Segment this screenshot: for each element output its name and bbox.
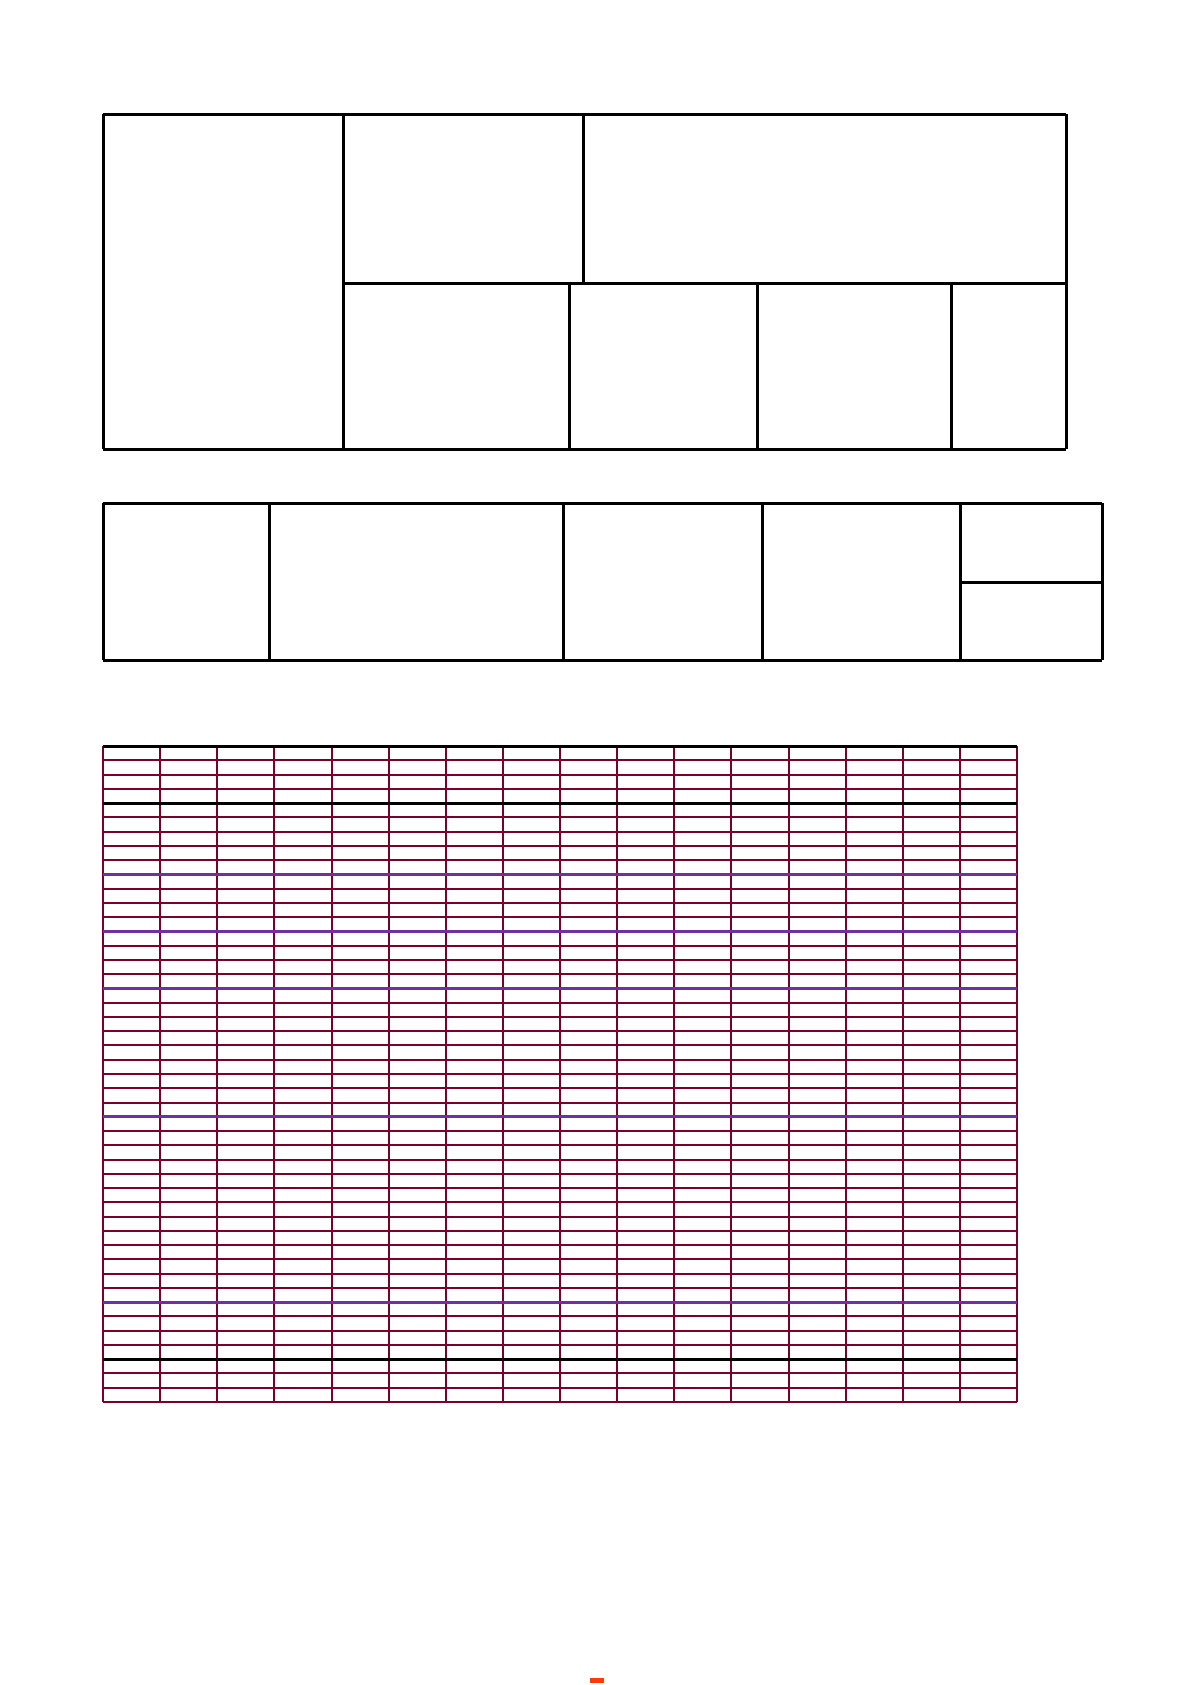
footer-red-mark [590, 1678, 604, 1683]
grid-top-border [103, 745, 1017, 748]
grid-horizontal-line [103, 945, 1017, 947]
grid-horizontal-line [103, 1287, 1017, 1289]
ruled-writing-grid [0, 0, 1191, 1685]
grid-horizontal-line [103, 959, 1017, 961]
grid-horizontal-line [103, 1115, 1017, 1118]
grid-horizontal-line [103, 774, 1017, 776]
grid-horizontal-line [103, 902, 1017, 904]
grid-horizontal-line [103, 1173, 1017, 1175]
grid-bottom-border [103, 1401, 1017, 1403]
grid-horizontal-line [103, 1016, 1017, 1018]
grid-horizontal-line [103, 1315, 1017, 1317]
grid-horizontal-line [103, 1244, 1017, 1246]
grid-horizontal-line [103, 1087, 1017, 1089]
grid-horizontal-line [103, 873, 1017, 876]
grid-horizontal-line [103, 1301, 1017, 1304]
grid-horizontal-line [103, 930, 1017, 933]
grid-horizontal-line [103, 987, 1017, 990]
grid-horizontal-line [103, 1387, 1017, 1389]
grid-horizontal-line [103, 1372, 1017, 1374]
grid-horizontal-line [103, 1216, 1017, 1218]
grid-horizontal-line [103, 1258, 1017, 1260]
grid-horizontal-line [103, 1358, 1017, 1361]
grid-horizontal-line [103, 759, 1017, 761]
grid-horizontal-line [103, 802, 1017, 805]
grid-horizontal-line [103, 973, 1017, 975]
grid-horizontal-line [103, 1044, 1017, 1046]
grid-horizontal-line [103, 1330, 1017, 1332]
grid-horizontal-line [103, 816, 1017, 818]
grid-horizontal-line [103, 1187, 1017, 1189]
grid-horizontal-line [103, 1059, 1017, 1061]
grid-horizontal-line [103, 1230, 1017, 1232]
grid-horizontal-line [103, 859, 1017, 861]
grid-horizontal-line [103, 1159, 1017, 1161]
grid-horizontal-line [103, 1344, 1017, 1346]
grid-horizontal-line [103, 1073, 1017, 1075]
grid-horizontal-line [103, 916, 1017, 918]
grid-horizontal-line [103, 788, 1017, 790]
grid-horizontal-line [103, 1002, 1017, 1004]
grid-horizontal-line [103, 1273, 1017, 1275]
grid-horizontal-line [103, 1102, 1017, 1104]
grid-horizontal-line [103, 831, 1017, 833]
grid-horizontal-line [103, 1030, 1017, 1032]
grid-horizontal-line [103, 1144, 1017, 1146]
document-page [0, 0, 1191, 1685]
grid-horizontal-line [103, 1201, 1017, 1203]
grid-horizontal-line [103, 845, 1017, 847]
grid-horizontal-line [103, 1130, 1017, 1132]
grid-horizontal-line [103, 888, 1017, 890]
